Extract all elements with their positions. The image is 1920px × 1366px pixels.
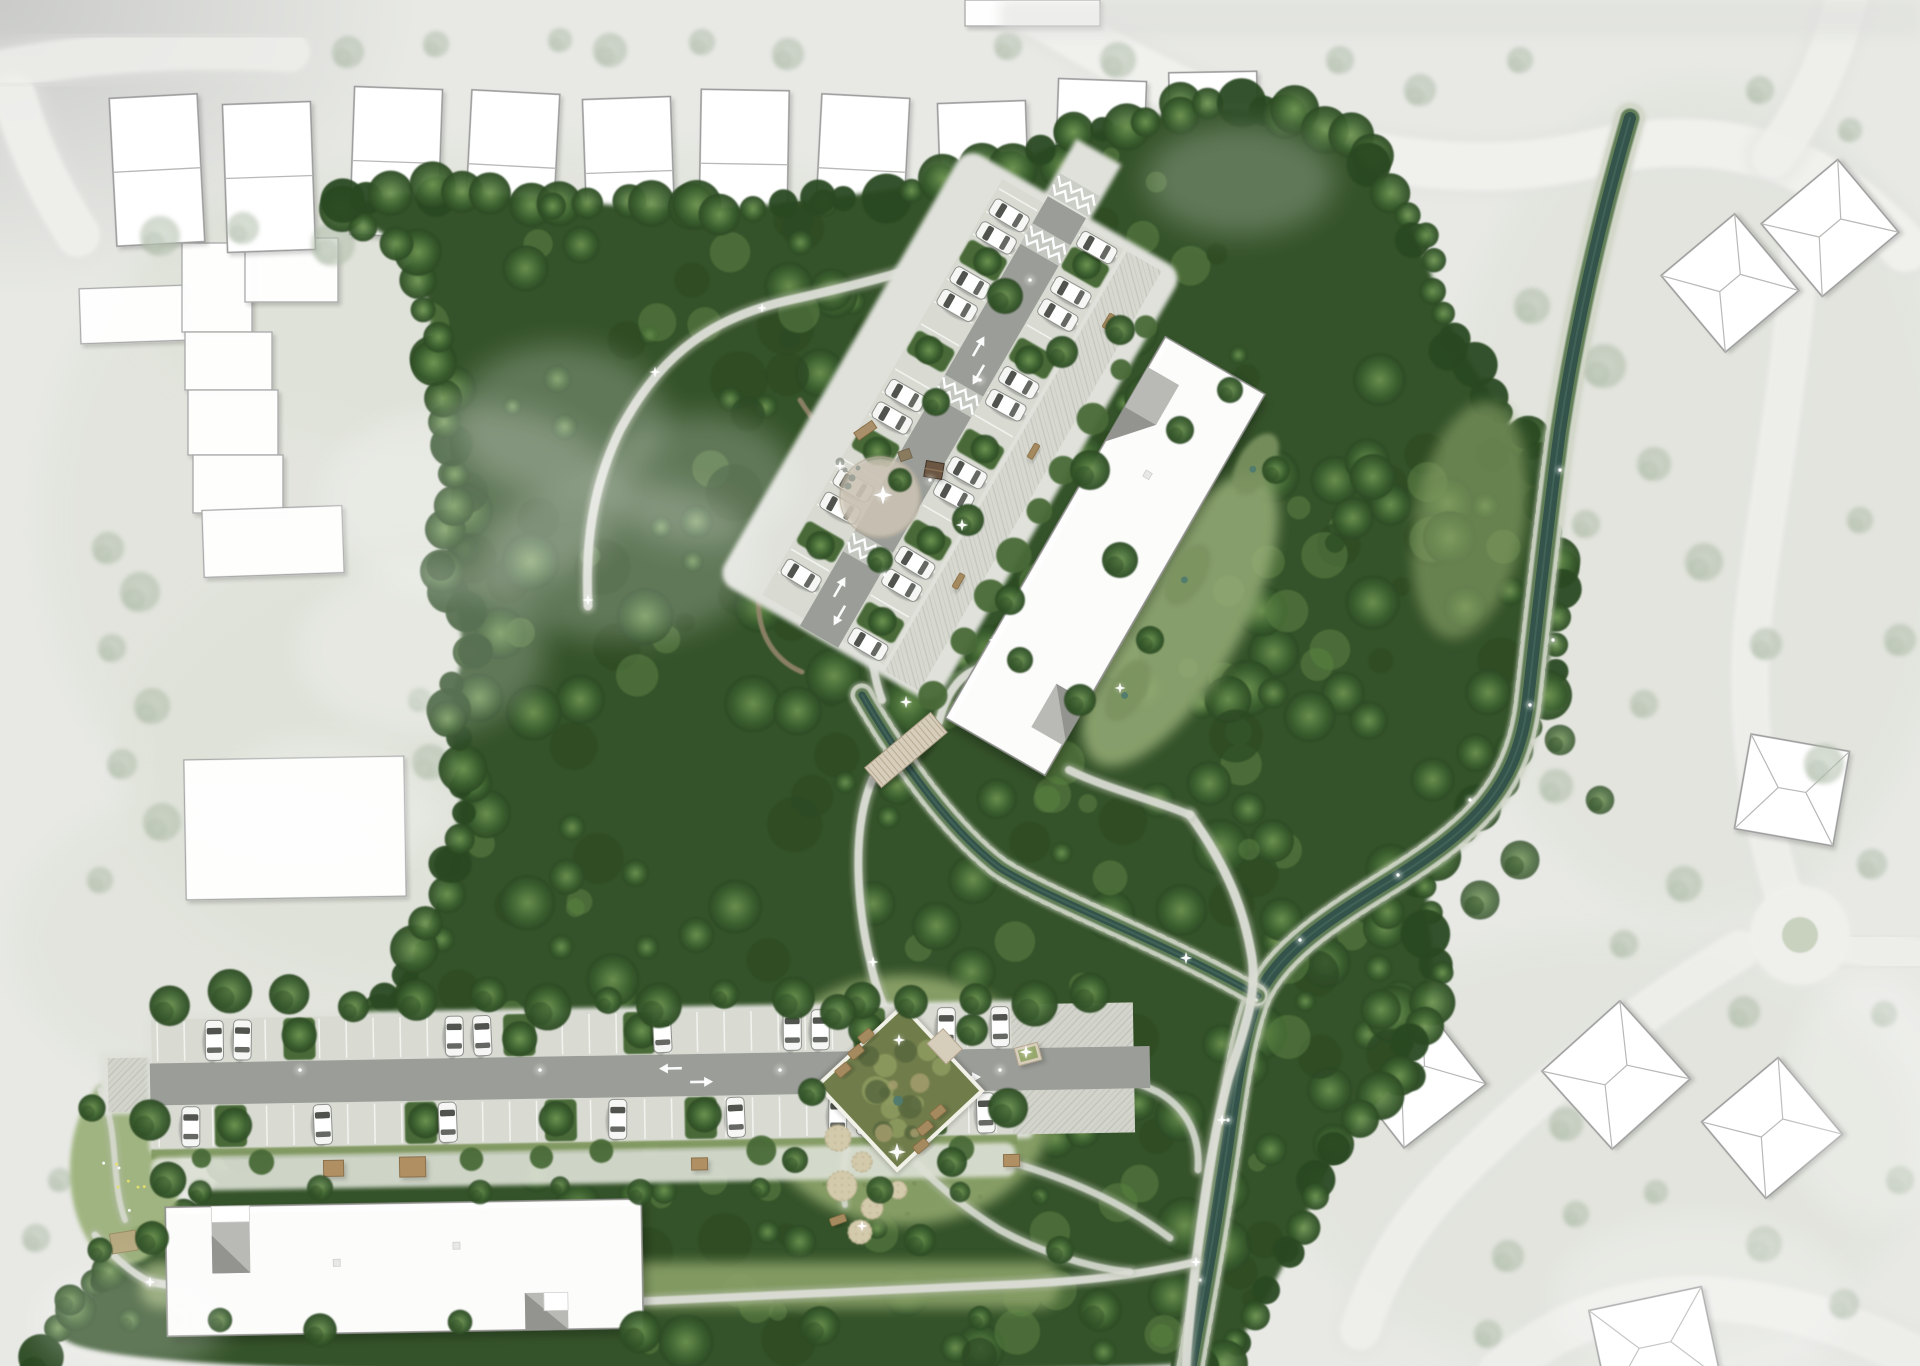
edge-tree bbox=[439, 744, 488, 793]
notch-cap bbox=[544, 1292, 568, 1310]
context-building-roof bbox=[193, 455, 283, 513]
stall-line bbox=[724, 1011, 725, 1051]
stall-line bbox=[778, 1011, 779, 1051]
car-roof bbox=[315, 1118, 332, 1132]
tree-shade bbox=[1589, 797, 1603, 811]
stall-line bbox=[779, 1097, 780, 1137]
tree bbox=[765, 352, 809, 396]
car-rear-window bbox=[316, 1131, 331, 1137]
tree bbox=[1051, 842, 1073, 864]
tree-shade bbox=[804, 1322, 824, 1342]
notch-cap bbox=[211, 1206, 249, 1223]
play-mound bbox=[852, 1152, 872, 1172]
tree-shade bbox=[712, 991, 727, 1006]
tree-shade bbox=[552, 1184, 562, 1194]
tree bbox=[1145, 1315, 1184, 1354]
edge-tree bbox=[1422, 248, 1446, 272]
water-sparkle bbox=[1528, 703, 1531, 706]
tree-shade bbox=[801, 1089, 815, 1103]
context-building-roof bbox=[188, 390, 278, 455]
faded-tree bbox=[89, 877, 103, 891]
mist bbox=[1145, 125, 1335, 235]
edge-tree bbox=[369, 983, 399, 1013]
edge-tree bbox=[408, 906, 442, 940]
tree bbox=[549, 934, 574, 959]
edge-tree bbox=[320, 178, 365, 223]
garden-shed bbox=[691, 1158, 707, 1170]
car-roof bbox=[992, 1021, 1008, 1034]
tree-shade bbox=[1083, 1306, 1105, 1328]
tree-shade bbox=[1548, 737, 1563, 752]
tree bbox=[549, 859, 585, 895]
faded-tree bbox=[1565, 1211, 1579, 1225]
tree bbox=[710, 232, 751, 273]
tree-shade bbox=[341, 1004, 357, 1020]
context-building bbox=[193, 455, 283, 513]
faded-tree bbox=[1849, 517, 1863, 531]
car-roof bbox=[727, 1111, 744, 1125]
stall-line bbox=[212, 1106, 213, 1146]
car-windshield bbox=[474, 1023, 489, 1030]
stall-line bbox=[184, 1021, 185, 1061]
tree-shade bbox=[992, 1104, 1012, 1124]
garden-shed bbox=[323, 1160, 343, 1176]
tree bbox=[1349, 701, 1387, 739]
faded-tree bbox=[1752, 641, 1770, 659]
stall-line bbox=[319, 1019, 320, 1059]
tree bbox=[1121, 1165, 1159, 1203]
faded-tree bbox=[1476, 1331, 1491, 1346]
site-plan-canvas bbox=[0, 0, 1920, 1366]
lamp-dot bbox=[998, 1068, 1002, 1072]
tree-shade bbox=[1074, 466, 1094, 486]
faded-tree bbox=[1585, 362, 1609, 386]
edge-tree bbox=[628, 180, 675, 227]
mist bbox=[480, 480, 760, 640]
edge-tree bbox=[572, 188, 604, 220]
context-building bbox=[182, 243, 252, 332]
car-rear-window bbox=[785, 1037, 800, 1043]
stall-line bbox=[427, 1017, 428, 1057]
tree-shade bbox=[1464, 896, 1484, 916]
context-building bbox=[188, 390, 278, 455]
car-roof bbox=[440, 1116, 456, 1130]
car-roof bbox=[446, 1030, 462, 1043]
car-windshield bbox=[728, 1104, 743, 1111]
faded-tree bbox=[1574, 521, 1589, 536]
faded-tree bbox=[1612, 941, 1627, 956]
tree bbox=[1093, 860, 1128, 895]
tree-shade bbox=[897, 998, 914, 1015]
tree-shade bbox=[450, 1320, 462, 1332]
edge-tree bbox=[539, 193, 566, 220]
tree-shade bbox=[1049, 1247, 1063, 1261]
car-windshield bbox=[992, 1014, 1007, 1021]
tree bbox=[1266, 590, 1308, 632]
tree-shade bbox=[869, 1187, 883, 1201]
edge-tree bbox=[699, 194, 741, 236]
car bbox=[230, 1020, 252, 1063]
car-roof bbox=[234, 1034, 250, 1047]
car-windshield bbox=[183, 1114, 198, 1121]
stall-line bbox=[374, 1104, 375, 1144]
water-sparkle bbox=[1558, 468, 1561, 471]
tree-shade bbox=[1169, 427, 1183, 441]
faded-tree bbox=[334, 49, 352, 67]
tree-shade bbox=[529, 1002, 553, 1026]
car-roof bbox=[812, 1024, 828, 1037]
car-windshield bbox=[315, 1112, 330, 1119]
faded-tree bbox=[1103, 56, 1123, 76]
tree-shade bbox=[991, 292, 1009, 310]
tree-shade bbox=[1067, 697, 1083, 713]
tree-shade bbox=[470, 1190, 482, 1202]
cul-de-sac-island bbox=[1782, 917, 1818, 953]
mist bbox=[205, 735, 435, 885]
lamp-dot bbox=[978, 378, 982, 382]
tree-shade bbox=[824, 1008, 842, 1026]
edge-tree bbox=[1241, 1301, 1270, 1330]
faded-tree bbox=[314, 240, 338, 264]
tree-shade bbox=[785, 1157, 798, 1170]
grass-tuft bbox=[978, 1195, 983, 1200]
edge-tree bbox=[1419, 278, 1446, 305]
car-rear-window bbox=[475, 1042, 490, 1048]
tree-shade bbox=[776, 994, 797, 1015]
car-roof bbox=[784, 1024, 800, 1037]
lamp-dot bbox=[298, 1068, 302, 1072]
water-sparkle bbox=[1551, 638, 1554, 641]
stall-line bbox=[644, 1099, 645, 1139]
play-mound bbox=[827, 1171, 857, 1201]
tree bbox=[1033, 786, 1060, 813]
tree bbox=[1267, 1015, 1311, 1059]
tree bbox=[1209, 709, 1262, 762]
faded-tree bbox=[137, 702, 157, 722]
tree-shade bbox=[153, 1176, 171, 1194]
edge-tree bbox=[831, 186, 856, 211]
faded-tree bbox=[100, 645, 115, 660]
tree-shade bbox=[191, 1190, 203, 1202]
tree-shade bbox=[1265, 467, 1279, 481]
stall-line bbox=[589, 1014, 590, 1054]
tree bbox=[912, 901, 961, 950]
tree bbox=[746, 938, 790, 982]
car-roof bbox=[206, 1034, 222, 1047]
edge-tree bbox=[1252, 1276, 1280, 1304]
lamp-dot bbox=[538, 1068, 542, 1072]
stall-line bbox=[671, 1098, 672, 1138]
tree bbox=[1353, 353, 1406, 406]
east-spur bbox=[1845, 945, 1920, 958]
car-roof bbox=[474, 1029, 491, 1043]
edge-tree bbox=[1431, 302, 1454, 325]
tree-shade bbox=[925, 399, 939, 413]
tree-shade bbox=[474, 991, 492, 1009]
faded-tree bbox=[774, 51, 792, 69]
car-rear-window bbox=[235, 1047, 250, 1053]
faded-tree bbox=[691, 39, 705, 53]
context-building-roof bbox=[182, 243, 252, 332]
tree-shade bbox=[970, 1316, 982, 1328]
tree bbox=[562, 226, 599, 263]
tree bbox=[698, 1213, 752, 1267]
faded-tree bbox=[229, 225, 247, 243]
car-windshield bbox=[610, 1107, 625, 1114]
edge-tree bbox=[452, 801, 476, 825]
tree-shade bbox=[81, 1105, 95, 1119]
car-windshield bbox=[440, 1110, 455, 1117]
stall-line bbox=[752, 1097, 753, 1137]
faded-tree bbox=[1748, 87, 1763, 102]
car-windshield bbox=[939, 1015, 954, 1022]
car-rear-window bbox=[993, 1034, 1008, 1040]
edge-tree bbox=[1302, 1183, 1329, 1210]
tree bbox=[638, 303, 676, 341]
stall-line bbox=[293, 1105, 294, 1145]
tree bbox=[550, 722, 598, 770]
tree bbox=[1091, 1339, 1117, 1365]
tree bbox=[559, 814, 586, 841]
edge-tree bbox=[1413, 223, 1438, 248]
garden-bed bbox=[109, 1230, 138, 1254]
faded-tree bbox=[1406, 87, 1424, 105]
garden-shed bbox=[399, 1157, 425, 1177]
grass-tuft bbox=[862, 1183, 867, 1188]
car-rear-window bbox=[441, 1129, 456, 1135]
tree bbox=[1310, 629, 1351, 670]
edge-tree bbox=[411, 297, 436, 322]
lamp-dot bbox=[778, 1068, 782, 1072]
faded-tree bbox=[1552, 1121, 1571, 1140]
stall-line bbox=[536, 1101, 537, 1141]
tree-shade bbox=[1220, 387, 1233, 400]
tree-shade bbox=[998, 597, 1013, 612]
faded-tree bbox=[123, 588, 145, 610]
car bbox=[179, 1107, 200, 1150]
boulder bbox=[849, 475, 856, 482]
skylight bbox=[333, 1259, 340, 1266]
tree bbox=[674, 262, 709, 297]
car bbox=[988, 1006, 1010, 1049]
stall-line bbox=[401, 1103, 402, 1143]
tree-shade bbox=[641, 1001, 664, 1024]
edge-tree bbox=[740, 196, 766, 222]
tree bbox=[1231, 792, 1265, 826]
tree bbox=[678, 917, 714, 953]
faded-tree bbox=[1886, 637, 1904, 655]
context-building-roof bbox=[185, 332, 272, 390]
grass-tuft bbox=[905, 1211, 910, 1216]
tree bbox=[1258, 678, 1289, 709]
car-rear-window bbox=[813, 1037, 828, 1043]
tree bbox=[1155, 884, 1207, 936]
stall-line bbox=[346, 1018, 347, 1058]
tree bbox=[1465, 669, 1511, 715]
tree-shade bbox=[952, 1190, 962, 1200]
tree bbox=[767, 797, 822, 852]
faded-tree bbox=[1632, 701, 1647, 716]
tree-shade bbox=[138, 1235, 155, 1252]
faded-tree bbox=[24, 1235, 39, 1250]
faded-tree bbox=[596, 47, 615, 66]
car-roof bbox=[610, 1113, 626, 1126]
car-rear-window bbox=[447, 1043, 462, 1049]
tree bbox=[834, 771, 856, 793]
stall-line bbox=[482, 1102, 483, 1142]
edge-tree bbox=[469, 172, 511, 214]
stall-line bbox=[616, 1013, 617, 1053]
edge-tree bbox=[380, 227, 414, 261]
tree bbox=[1456, 733, 1495, 772]
tree-shade bbox=[1049, 349, 1065, 365]
car-roof bbox=[183, 1121, 199, 1134]
tree-shade bbox=[310, 1185, 323, 1198]
tree bbox=[1283, 690, 1335, 742]
stall-line bbox=[400, 1017, 401, 1057]
grass-tuft bbox=[822, 1182, 827, 1187]
car-rear-window bbox=[729, 1124, 744, 1130]
tree bbox=[622, 859, 650, 887]
car-windshield bbox=[447, 1024, 462, 1031]
tree-shade bbox=[959, 1027, 975, 1043]
car-windshield bbox=[235, 1027, 250, 1034]
boulder bbox=[845, 483, 852, 490]
tree bbox=[995, 921, 1036, 962]
play-mound bbox=[825, 1125, 851, 1151]
tree-shade bbox=[1033, 1194, 1042, 1203]
tree bbox=[1368, 648, 1393, 673]
car-rear-window bbox=[207, 1047, 222, 1053]
tree-shade bbox=[153, 1002, 173, 1022]
tree bbox=[634, 935, 658, 959]
faded-tree bbox=[425, 41, 439, 55]
car-roof bbox=[654, 1026, 671, 1040]
tree bbox=[502, 245, 548, 291]
faded-tree bbox=[1807, 760, 1829, 782]
faded-tree bbox=[94, 545, 112, 563]
tree bbox=[500, 875, 556, 931]
tree bbox=[1229, 346, 1247, 364]
water-sparkle bbox=[1298, 938, 1301, 941]
faded-tree bbox=[1688, 558, 1709, 579]
tree-shade bbox=[1139, 637, 1153, 651]
tree bbox=[788, 230, 813, 255]
edge-tree bbox=[800, 180, 836, 216]
tree-shade bbox=[133, 1116, 154, 1137]
stall-line bbox=[266, 1105, 267, 1145]
edge-tree bbox=[769, 189, 798, 218]
tree bbox=[1009, 822, 1050, 863]
tree bbox=[814, 733, 859, 778]
faded-tree bbox=[1542, 783, 1561, 802]
garden-shed bbox=[1003, 1154, 1019, 1166]
tree bbox=[877, 805, 900, 828]
stall-line bbox=[373, 1018, 374, 1058]
tree bbox=[1187, 761, 1232, 806]
faded-tree bbox=[1646, 1190, 1659, 1203]
car-rear-window bbox=[655, 1039, 670, 1045]
context-building bbox=[185, 332, 272, 390]
tree bbox=[1365, 954, 1393, 982]
water-sparkle bbox=[1468, 798, 1471, 801]
water-sparkle bbox=[1396, 873, 1399, 876]
stall-line bbox=[347, 1104, 348, 1144]
tree bbox=[1287, 496, 1310, 519]
faded-tree bbox=[50, 1178, 63, 1191]
tree-shade bbox=[623, 1328, 644, 1349]
tree bbox=[1350, 454, 1396, 500]
faded-tree bbox=[1669, 880, 1689, 900]
top-left-street bbox=[0, 50, 290, 70]
tree-shade bbox=[907, 1237, 923, 1253]
tree-shade bbox=[273, 990, 293, 1010]
tree-shade bbox=[1504, 856, 1524, 876]
tree-shade bbox=[400, 996, 421, 1017]
tree bbox=[1345, 575, 1399, 629]
faded-tree bbox=[146, 818, 167, 839]
lamp-dot bbox=[928, 478, 932, 482]
faded-tree bbox=[1494, 1253, 1512, 1271]
skylight bbox=[453, 1242, 460, 1249]
tree bbox=[555, 675, 604, 724]
car-rear-window bbox=[978, 1120, 993, 1126]
stall-line bbox=[157, 1021, 158, 1061]
grass-tuft bbox=[912, 1181, 917, 1186]
tree bbox=[1254, 1133, 1287, 1166]
edge-tree bbox=[423, 322, 454, 353]
tree-shade bbox=[1016, 999, 1039, 1022]
tree bbox=[995, 1309, 1040, 1354]
tree-shade bbox=[630, 1189, 643, 1202]
lamp-dot bbox=[1028, 278, 1032, 282]
tree-shade bbox=[90, 1247, 103, 1260]
tree-shade bbox=[1074, 989, 1094, 1009]
tree-shade bbox=[1108, 327, 1123, 342]
faded-tree bbox=[1640, 461, 1659, 480]
tree-shade bbox=[597, 998, 611, 1012]
faded-tree bbox=[550, 38, 563, 51]
stall-line bbox=[697, 1012, 698, 1052]
tree-shade bbox=[870, 557, 883, 570]
context-building-roof bbox=[79, 285, 186, 344]
tree bbox=[1410, 757, 1454, 801]
lamp-dot bbox=[883, 573, 887, 577]
tree bbox=[616, 654, 658, 696]
stall-line bbox=[265, 1019, 266, 1059]
tree-shade bbox=[1010, 657, 1023, 670]
edge-tree bbox=[368, 171, 413, 216]
faded-tree bbox=[1730, 1009, 1748, 1027]
tree-shade bbox=[940, 1159, 955, 1174]
faded-tree bbox=[109, 761, 126, 778]
faded-tree bbox=[143, 232, 165, 254]
context-building bbox=[79, 285, 186, 344]
tree-shade bbox=[212, 987, 234, 1009]
boulder bbox=[843, 468, 848, 473]
car bbox=[202, 1020, 224, 1063]
car bbox=[606, 1099, 627, 1142]
tree bbox=[1332, 497, 1374, 539]
tree bbox=[1295, 991, 1316, 1012]
tree-shade bbox=[307, 1327, 324, 1344]
tree-shade bbox=[890, 478, 902, 490]
tree-shade bbox=[752, 1186, 762, 1196]
tree-shade bbox=[1106, 556, 1124, 574]
stall-line bbox=[751, 1011, 752, 1051]
car bbox=[442, 1016, 464, 1059]
tree bbox=[708, 879, 762, 933]
